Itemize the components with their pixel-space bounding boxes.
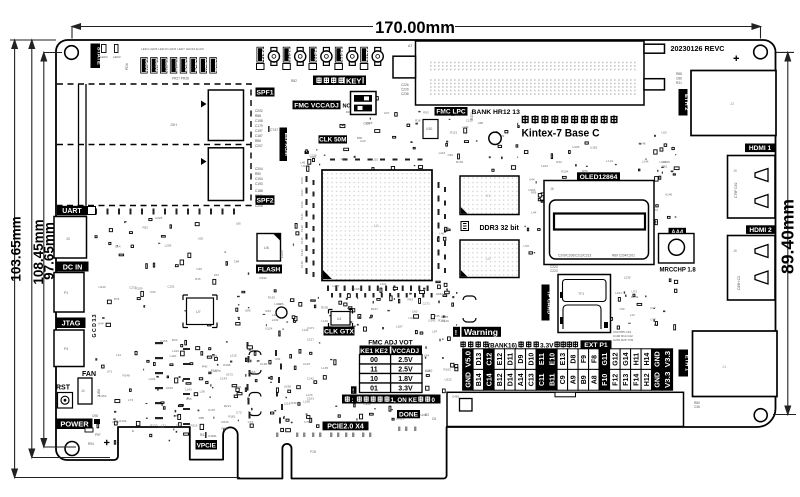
svg-text:C27: C27 — [650, 306, 656, 310]
svg-text:C14: C14 — [487, 373, 494, 386]
svg-text:R86: R86 — [255, 139, 261, 143]
svg-text:LED2: LED2 — [100, 55, 108, 59]
svg-text:U7: U7 — [196, 310, 201, 314]
svg-text:1.8V: 1.8V — [398, 376, 413, 383]
svg-text:U33: U33 — [150, 290, 156, 294]
svg-text:KE1 KE2: KE1 KE2 — [360, 348, 388, 355]
svg-text:C121: C121 — [300, 213, 304, 220]
svg-text:L170: L170 — [306, 393, 313, 397]
svg-text:FMC ADJ VOT: FMC ADJ VOT — [368, 339, 412, 346]
svg-text:R85: R85 — [199, 416, 205, 420]
svg-text:G12: G12 — [613, 352, 620, 365]
svg-text:R50: R50 — [582, 169, 588, 173]
svg-text:C223: C223 — [280, 250, 284, 258]
svg-text::: : — [352, 397, 354, 404]
svg-text:RST: RST — [56, 385, 71, 392]
svg-text:U109: U109 — [408, 316, 416, 320]
svg-text:C207: C207 — [255, 144, 263, 148]
svg-text:D13: D13 — [476, 353, 483, 366]
svg-text:L73: L73 — [128, 398, 133, 402]
svg-text:U6: U6 — [264, 246, 269, 250]
svg-text:LED3: LED3 — [113, 55, 121, 59]
svg-text:R2: R2 — [425, 413, 429, 417]
svg-text:KEY3: KEY3 — [314, 49, 319, 62]
svg-text:J6: J6 — [550, 187, 554, 191]
svg-text:C223: C223 — [550, 269, 558, 273]
svg-text:L191: L191 — [321, 319, 328, 323]
svg-text:GND: GND — [655, 372, 662, 388]
svg-text:F9: F9 — [581, 355, 588, 363]
svg-text:L233: L233 — [272, 318, 279, 322]
svg-text:C229: C229 — [401, 88, 409, 92]
svg-text:97.65mm: 97.65mm — [42, 222, 57, 280]
svg-text:L244: L244 — [172, 349, 179, 353]
svg-text:L31: L31 — [161, 423, 166, 427]
svg-text:U15: U15 — [373, 158, 379, 162]
svg-text:R159: R159 — [135, 287, 143, 291]
svg-text:L41: L41 — [116, 353, 121, 357]
svg-text:U204: U204 — [528, 188, 536, 192]
svg-text:R31: R31 — [676, 81, 682, 85]
svg-text:V5.0: V5.0 — [466, 351, 473, 368]
svg-text:LED4: LED4 — [174, 59, 179, 72]
svg-text:R94: R94 — [88, 442, 94, 446]
svg-text:TF CARD: TF CARD — [545, 291, 551, 315]
svg-text:U30: U30 — [426, 127, 432, 131]
svg-text:3.8V: 3.8V — [96, 388, 101, 397]
svg-text:J4: J4 — [81, 389, 85, 393]
svg-text:P97: P97 — [95, 433, 101, 437]
svg-text:R88: R88 — [255, 114, 261, 118]
svg-text:FAN: FAN — [82, 371, 96, 378]
svg-text:C481: C481 — [452, 395, 460, 399]
svg-text:U61: U61 — [275, 357, 281, 361]
svg-text:LED7: LED7 — [204, 59, 209, 72]
svg-text:LED5: LED5 — [184, 59, 189, 72]
svg-text:L101: L101 — [615, 291, 622, 295]
svg-text:CLK GTX: CLK GTX — [324, 329, 354, 336]
svg-text:UART: UART — [62, 208, 82, 215]
svg-text:R42: R42 — [556, 160, 562, 164]
svg-text:U250: U250 — [284, 384, 292, 388]
svg-text:U222: U222 — [445, 377, 453, 381]
svg-text:L13: L13 — [630, 313, 635, 317]
svg-text:PR27 PR28: PR27 PR28 — [172, 77, 189, 81]
svg-text:E12: E12 — [497, 353, 504, 366]
svg-text:B12: B12 — [497, 373, 504, 386]
svg-text:C188: C188 — [255, 189, 263, 193]
svg-text:R230: R230 — [221, 420, 229, 424]
svg-text:VPCIE: VPCIE — [197, 442, 217, 449]
svg-text:C9: C9 — [560, 375, 567, 384]
svg-text:C128: C128 — [300, 225, 304, 232]
svg-text:C143: C143 — [220, 377, 228, 381]
svg-text:D14: D14 — [508, 373, 515, 386]
svg-text:L216: L216 — [439, 151, 446, 155]
svg-text:G14: G14 — [623, 352, 630, 365]
svg-text:C56: C56 — [176, 423, 182, 427]
svg-text:103.65mm: 103.65mm — [9, 216, 24, 281]
svg-text:C36: C36 — [694, 405, 700, 409]
svg-text:11: 11 — [370, 367, 378, 374]
svg-text:KEY2: KEY2 — [287, 49, 292, 62]
svg-text:A7: A7 — [408, 44, 412, 48]
svg-text:L63: L63 — [662, 131, 667, 135]
svg-text:L38: L38 — [200, 390, 205, 394]
svg-text:R20: R20 — [172, 338, 178, 342]
svg-text:C60: C60 — [448, 153, 454, 157]
svg-text:VCCADJ: VCCADJ — [392, 348, 419, 355]
svg-text:LED2: LED2 — [155, 59, 160, 72]
svg-text:C179: C179 — [255, 124, 263, 128]
svg-text:U175: U175 — [214, 369, 222, 373]
svg-text:R152: R152 — [456, 160, 464, 164]
svg-text:D10: D10 — [529, 353, 536, 366]
svg-text:C11: C11 — [539, 373, 546, 386]
svg-text:CLK 50M: CLK 50M — [319, 137, 346, 144]
svg-text:R82: R82 — [291, 79, 297, 83]
svg-text:L54: L54 — [214, 273, 219, 277]
svg-text:POWER: POWER — [60, 420, 89, 429]
svg-text:R93: R93 — [408, 298, 414, 302]
svg-text:U182: U182 — [436, 292, 444, 296]
svg-text:3.3V: 3.3V — [540, 342, 554, 349]
svg-text:R90: R90 — [255, 172, 261, 176]
svg-text:R88: R88 — [676, 72, 682, 76]
svg-text:R181: R181 — [228, 415, 236, 419]
svg-text:C187: C187 — [255, 134, 263, 138]
svg-text:L187: L187 — [396, 324, 403, 328]
svg-text:U44: U44 — [529, 178, 535, 182]
svg-text:R192: R192 — [260, 276, 268, 280]
svg-text:EXT P1: EXT P1 — [584, 342, 608, 349]
svg-text:L44: L44 — [531, 210, 536, 214]
svg-text:U159: U159 — [210, 354, 218, 358]
svg-text:R52: R52 — [143, 225, 149, 229]
svg-text:R53: R53 — [423, 110, 429, 114]
svg-text:L142: L142 — [185, 388, 192, 392]
svg-text:C236: C236 — [401, 92, 409, 96]
svg-text:C198: C198 — [255, 119, 263, 123]
svg-text:U17: U17 — [650, 318, 656, 322]
svg-text:C142: C142 — [300, 249, 304, 256]
svg-text:C84: C84 — [234, 260, 240, 264]
svg-text:1, ON KE: 1, ON KE — [391, 397, 417, 404]
svg-text:2.5V: 2.5V — [398, 357, 413, 364]
svg-text:R198: R198 — [223, 363, 231, 367]
svg-text:A9: A9 — [571, 375, 578, 384]
svg-text:R81: R81 — [662, 164, 668, 168]
svg-text:C40: C40 — [196, 267, 202, 271]
svg-text:FLASH: FLASH — [258, 267, 281, 274]
svg-text:C86: C86 — [676, 77, 682, 81]
svg-text:U70: U70 — [523, 244, 529, 248]
svg-text:G11: G11 — [602, 353, 609, 366]
svg-text:C270: C270 — [440, 111, 448, 115]
svg-text:J3: J3 — [66, 237, 70, 241]
svg-text:L46: L46 — [300, 160, 305, 164]
svg-text:L84: L84 — [424, 354, 429, 358]
svg-text:C101: C101 — [167, 285, 175, 289]
svg-text:C107: C107 — [300, 189, 304, 196]
svg-text:G C D 3.3: G C D 3.3 — [92, 314, 98, 337]
svg-text:L125: L125 — [333, 284, 340, 288]
svg-text:U199: U199 — [112, 420, 120, 424]
svg-text:J5H: J5H — [170, 122, 177, 127]
svg-text:10: 10 — [370, 376, 378, 383]
svg-text:PD4: PD4 — [125, 63, 129, 70]
svg-text:U123: U123 — [659, 160, 667, 164]
svg-text:L59: L59 — [620, 307, 625, 311]
svg-text:F12: F12 — [613, 374, 620, 386]
svg-text:C194: C194 — [255, 177, 263, 181]
svg-text:A8: A8 — [592, 375, 599, 384]
svg-text:C74: C74 — [248, 420, 254, 424]
svg-text:U220: U220 — [302, 164, 310, 168]
svg-text:R18: R18 — [415, 119, 421, 123]
svg-text:3.3V: 3.3V — [398, 386, 413, 393]
svg-text:U2: U2 — [486, 257, 491, 261]
svg-text:C137: C137 — [307, 337, 315, 341]
svg-text:C142: C142 — [307, 377, 315, 381]
svg-text:R249: R249 — [631, 295, 639, 299]
svg-text:D8: D8 — [571, 355, 578, 364]
svg-text:KEY: KEY — [346, 76, 361, 85]
svg-text:R76: R76 — [114, 297, 120, 301]
svg-text:U182: U182 — [590, 146, 598, 150]
svg-text:U38: U38 — [425, 369, 431, 373]
svg-text:00: 00 — [370, 357, 378, 364]
svg-text:L45: L45 — [439, 231, 444, 235]
svg-text:A14: A14 — [518, 373, 525, 386]
svg-text:C135: C135 — [300, 237, 304, 244]
svg-text:U87: U87 — [341, 157, 347, 161]
svg-text:R120: R120 — [150, 424, 158, 428]
svg-text:C199: C199 — [260, 362, 268, 366]
svg-text:C187: C187 — [354, 287, 362, 291]
svg-text:R32: R32 — [265, 309, 271, 313]
svg-text:L95: L95 — [236, 222, 241, 226]
svg-text:B11: B11 — [550, 373, 557, 386]
svg-text:R148: R148 — [123, 374, 131, 378]
svg-text:L54: L54 — [444, 226, 449, 230]
svg-text:L239: L239 — [624, 276, 631, 280]
svg-text:J8: J8 — [733, 249, 737, 253]
svg-text:L232: L232 — [149, 377, 156, 381]
svg-text:H12: H12 — [644, 373, 651, 386]
svg-text:L162: L162 — [541, 164, 548, 168]
svg-text:Warning: Warning — [464, 328, 498, 337]
svg-text:BANK HR12 13: BANK HR12 13 — [472, 109, 521, 116]
svg-text:L111: L111 — [463, 125, 470, 129]
svg-text:C252 R26 TVR: C252 R26 TVR — [613, 338, 634, 342]
svg-text:H14: H14 — [644, 353, 651, 366]
svg-text:TF1: TF1 — [578, 292, 584, 296]
svg-text:U171: U171 — [307, 326, 315, 330]
svg-text:C202: C202 — [255, 109, 263, 113]
svg-text:JTAG: JTAG — [62, 319, 81, 328]
svg-text:C193: C193 — [255, 182, 263, 186]
svg-text:EEPROM: EEPROM — [283, 133, 289, 157]
svg-text:170.00mm: 170.00mm — [375, 19, 455, 37]
svg-text:P1: P1 — [64, 291, 68, 295]
svg-text:FMC VCCADJ: FMC VCCADJ — [294, 102, 339, 109]
svg-text:B9: B9 — [581, 375, 588, 384]
svg-text:C89H C3: C89H C3 — [737, 276, 741, 290]
svg-text:Kintex-7 Base C: Kintex-7 Base C — [522, 128, 600, 140]
svg-text:20230126 REVC: 20230126 REVC — [671, 44, 725, 53]
svg-text:!: ! — [455, 330, 457, 337]
svg-text:U73: U73 — [632, 290, 638, 294]
svg-text:E10: E10 — [550, 353, 557, 366]
svg-text:U140: U140 — [665, 193, 673, 197]
svg-text:U225: U225 — [155, 216, 163, 220]
svg-text:R154: R154 — [561, 169, 569, 173]
svg-text:C149: C149 — [300, 261, 304, 268]
svg-text:!: ! — [352, 389, 354, 395]
svg-text:R163: R163 — [444, 368, 452, 372]
svg-text:L218: L218 — [284, 401, 291, 405]
svg-text:D9: D9 — [518, 355, 525, 364]
svg-text:E11: E11 — [539, 353, 546, 365]
svg-text:L215: L215 — [230, 354, 237, 358]
svg-text:GND: GND — [655, 351, 662, 367]
svg-text:F14: F14 — [634, 374, 641, 386]
svg-text:R101: R101 — [438, 318, 446, 322]
svg-text:F10: F10 — [602, 374, 609, 386]
svg-text:U44: U44 — [98, 322, 104, 326]
svg-text:PCIE2.0 X4: PCIE2.0 X4 — [327, 423, 364, 430]
svg-text:R116: R116 — [222, 426, 229, 430]
svg-text:89.40mm: 89.40mm — [778, 199, 798, 274]
svg-text:ETH 2: ETH 2 — [683, 94, 689, 110]
svg-text:C204: C204 — [255, 167, 263, 171]
svg-text:L120: L120 — [170, 354, 177, 358]
svg-text:K1: K1 — [486, 194, 490, 198]
svg-text:C12: C12 — [487, 353, 494, 366]
svg-text:R221: R221 — [224, 404, 232, 408]
svg-text:P4: P4 — [64, 347, 68, 351]
svg-text:U4: U4 — [337, 317, 341, 321]
svg-text:C176: C176 — [309, 154, 317, 158]
svg-text:LED1: LED1 — [145, 59, 150, 72]
svg-text:F13: F13 — [623, 374, 630, 386]
svg-text:KEY5: KEY5 — [365, 49, 370, 62]
svg-text:L131: L131 — [606, 159, 613, 163]
svg-text:U95: U95 — [478, 121, 484, 125]
svg-text:L166: L166 — [249, 370, 256, 374]
svg-text:C13: C13 — [529, 373, 536, 386]
svg-text:C60: C60 — [412, 310, 418, 314]
svg-text:C114: C114 — [300, 201, 304, 208]
svg-text:R15: R15 — [195, 277, 201, 281]
svg-text:R157: R157 — [371, 307, 379, 311]
svg-text:U166: U166 — [166, 386, 174, 390]
svg-text:C100: C100 — [300, 177, 304, 184]
svg-text:H11: H11 — [634, 353, 641, 366]
svg-text:R122: R122 — [234, 385, 242, 389]
svg-text:MRCCHP 1.8: MRCCHP 1.8 — [660, 268, 697, 274]
svg-text:J9: J9 — [733, 169, 737, 173]
svg-text:U142: U142 — [428, 318, 436, 322]
svg-text:U86: U86 — [245, 309, 251, 313]
svg-text:E13: E13 — [560, 353, 567, 366]
svg-text:U143: U143 — [98, 285, 106, 289]
svg-text:R139: R139 — [268, 296, 276, 300]
svg-text:R192: R192 — [119, 419, 127, 423]
svg-text:HDMI 1: HDMI 1 — [749, 145, 772, 152]
svg-text:D11: D11 — [508, 353, 515, 366]
svg-text:R116: R116 — [191, 423, 198, 427]
svg-text:R235: R235 — [321, 306, 329, 310]
svg-text:LED4 LED5 LED10 LED6 LED7 LED1: LED4 LED5 LED10 LED6 LED7 LED16 E1C6 — [141, 47, 204, 51]
svg-text:L135: L135 — [321, 366, 328, 370]
svg-text:R201: R201 — [470, 112, 474, 120]
svg-text:C200/C206/C212/C213: C200/C206/C212/C213 — [558, 254, 591, 258]
svg-text:SPF2: SPF2 — [257, 198, 274, 205]
svg-text:L209: L209 — [165, 244, 172, 248]
svg-text:R35: R35 — [434, 314, 440, 318]
svg-text:V3.3: V3.3 — [665, 351, 672, 368]
svg-text:B14: B14 — [476, 373, 483, 386]
svg-text:U71: U71 — [107, 370, 113, 374]
svg-text:C747: C747 — [270, 128, 278, 132]
svg-text:2.5V: 2.5V — [398, 367, 413, 374]
svg-text:L146: L146 — [642, 159, 649, 163]
svg-text:C171: C171 — [423, 301, 431, 305]
svg-text:L111: L111 — [380, 282, 387, 286]
svg-text:ETH 1: ETH 1 — [683, 355, 689, 372]
svg-text:U1: U1 — [374, 223, 380, 228]
svg-text:C148: C148 — [638, 142, 646, 146]
svg-text:DC IN: DC IN — [63, 262, 83, 271]
svg-text:C5: C5 — [432, 417, 436, 421]
svg-text:U124: U124 — [265, 327, 273, 331]
svg-text:R115: R115 — [366, 121, 373, 125]
svg-text:0: 0 — [432, 397, 436, 404]
svg-text:L87: L87 — [432, 330, 437, 334]
svg-text:LED3: LED3 — [164, 59, 169, 72]
svg-text:(BANK16): (BANK16) — [488, 342, 517, 349]
svg-text:C79F C92: C79F C92 — [734, 182, 738, 198]
svg-text:C4911: C4911 — [208, 434, 217, 438]
svg-text:C72: C72 — [236, 411, 242, 415]
svg-text:DDR3 32 bit: DDR3 32 bit — [480, 225, 520, 232]
svg-text:F8: F8 — [592, 355, 599, 363]
svg-text:U106: U106 — [572, 145, 580, 149]
svg-text:KEY1: KEY1 — [261, 49, 266, 62]
svg-text:R40: R40 — [202, 365, 208, 369]
svg-text:U107: U107 — [208, 408, 216, 412]
svg-text:R121: R121 — [450, 130, 458, 134]
svg-text:C165: C165 — [160, 339, 168, 343]
svg-text:GND: GND — [466, 372, 473, 388]
svg-text:C98: C98 — [92, 414, 98, 418]
svg-text:U27: U27 — [384, 111, 390, 115]
svg-text:01: 01 — [370, 386, 378, 393]
svg-text:U78: U78 — [304, 420, 310, 424]
svg-text:R89 C204/C201: R89 C204/C201 — [612, 254, 635, 258]
svg-text:C14: C14 — [115, 244, 121, 248]
svg-text:L195: L195 — [303, 399, 310, 403]
svg-text:KEY4: KEY4 — [340, 49, 345, 62]
svg-text:C107: C107 — [303, 362, 311, 366]
svg-text:R115: R115 — [291, 401, 298, 405]
svg-text:U122: U122 — [275, 302, 283, 306]
svg-text:P2B: P2B — [310, 450, 316, 454]
svg-text:R45: R45 — [186, 397, 192, 401]
svg-text:C197: C197 — [255, 129, 263, 133]
